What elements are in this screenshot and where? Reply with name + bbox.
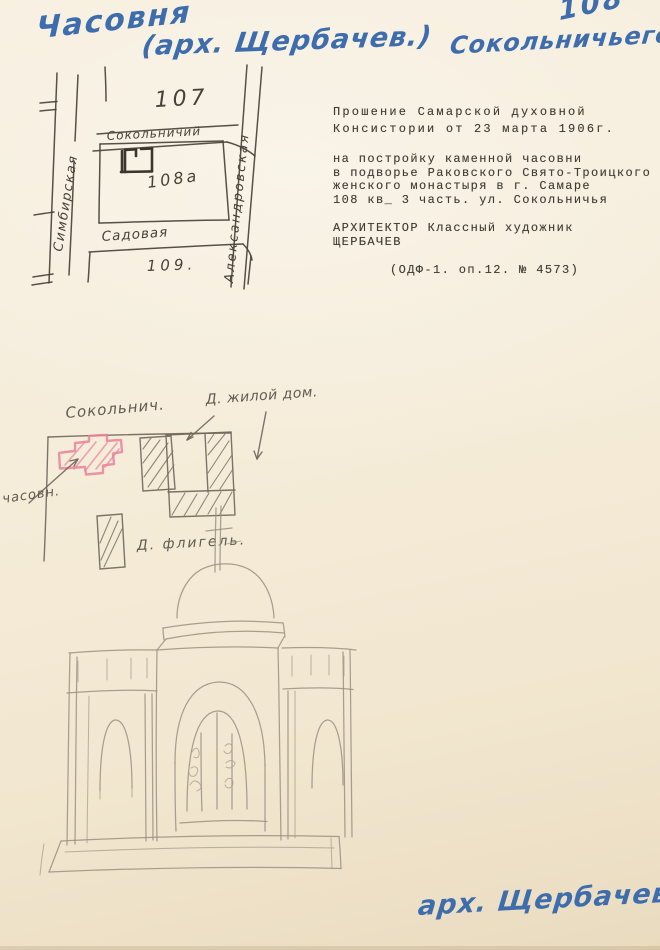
- typed-line: Прошение Самарской духовной: [333, 104, 660, 121]
- typed-line: на постройку каменной часовни: [333, 153, 660, 167]
- plan-building-hatched-tall: [140, 436, 175, 491]
- typed-paragraph: на постройку каменной часовни в подворье…: [333, 153, 660, 207]
- typed-paragraph: Прошение Самарской духовной Консистории …: [333, 104, 660, 138]
- typed-line: ЩЕРБАЧЕВ: [333, 236, 660, 250]
- chapel-right-wing: [282, 648, 356, 839]
- scanned-document-page: Часовня (арх. Щербачев.) 108 Сокольничье…: [0, 0, 660, 950]
- typed-paragraph: (ОДФ-1. оп.12. № 4573): [333, 264, 660, 278]
- typed-line: (ОДФ-1. оп.12. № 4573): [390, 264, 660, 278]
- map-label-street-south: Садовая: [101, 224, 169, 245]
- chapel-central-block: [156, 647, 281, 841]
- map-label-street-west: Симбирская: [51, 154, 81, 253]
- typed-line: женского монастыря в г. Самаре: [333, 180, 660, 194]
- chapel-door: [180, 711, 267, 823]
- typed-line: в подворье Раковского Свято-Троицкого: [333, 167, 660, 181]
- map-label-street-east: Александровская: [222, 132, 253, 284]
- typed-line: АРХИТЕКТОР Классный художник: [333, 222, 660, 236]
- chapel-elevation-sketch: [20, 500, 360, 890]
- ink-site-map: 107 Сокольничий Симбирская Александровск…: [0, 55, 340, 295]
- map-label-street-north: Сокольничий: [106, 124, 201, 143]
- typed-paragraph: АРХИТЕКТОР Классный художник ЩЕРБАЧЕВ: [333, 222, 660, 249]
- map-label-block-108a: 108а: [146, 166, 200, 192]
- plan-chapel-footprint-pink: [59, 435, 122, 475]
- chapel-dome: [157, 564, 285, 650]
- map-chapel-site-square: [121, 148, 152, 172]
- typed-line: Консистории от 23 марта 1906г.: [333, 121, 660, 138]
- handwritten-street-name: Сокольничьего: [449, 22, 660, 58]
- handwritten-block-number: 108: [558, 0, 626, 25]
- chapel-base-platform: [40, 836, 341, 875]
- map-label-block-107: 107: [154, 85, 209, 113]
- typed-line: 108 кв_ 3 часть. ул. Сокольничья: [333, 194, 660, 208]
- map-label-block-109: 109.: [147, 255, 197, 275]
- typed-abstract: Прошение Самарской духовной Консистории …: [333, 104, 660, 293]
- plan-label-dwelling-house: Д. жилой дом.: [204, 385, 318, 408]
- chapel-left-wing: [67, 650, 157, 845]
- plan-label-street: Сокольнич.: [65, 395, 166, 422]
- handwritten-signature: арх. Щербачев.: [417, 879, 660, 920]
- chapel-cross: [206, 506, 241, 572]
